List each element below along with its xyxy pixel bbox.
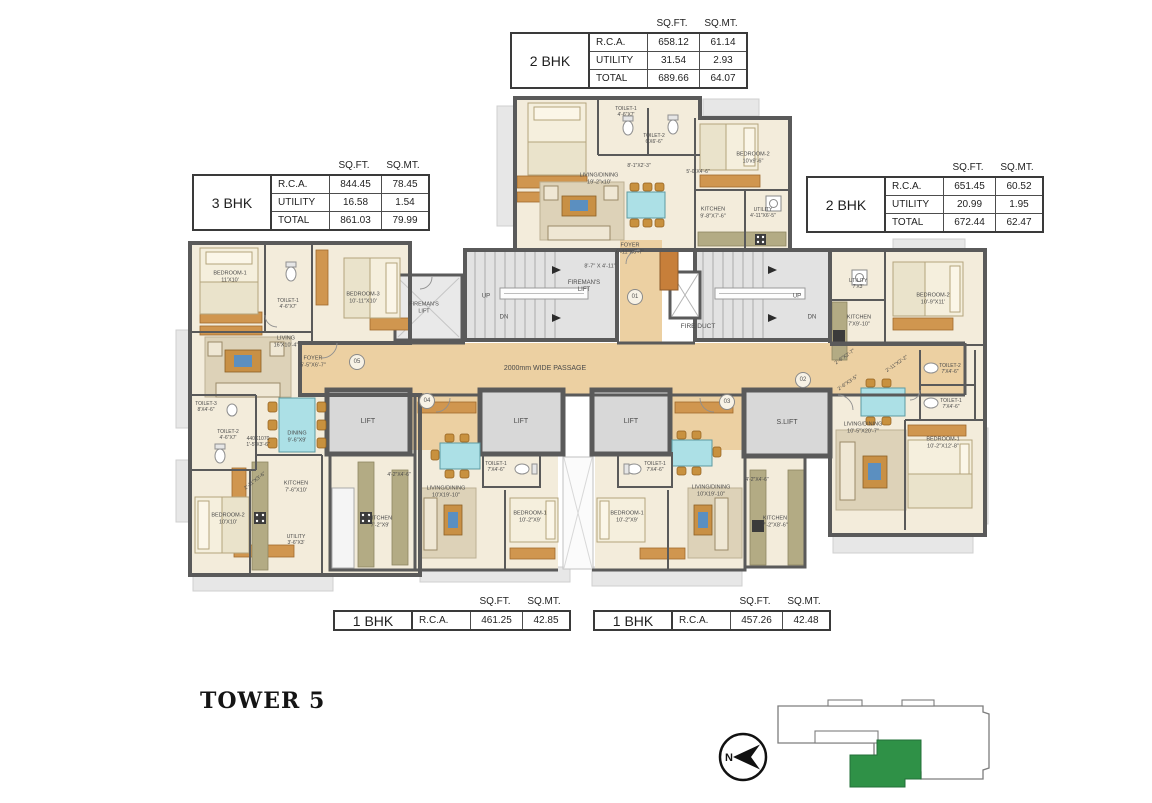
duct-shaft (563, 457, 593, 569)
area-value: 861.03 (330, 212, 382, 229)
col-header: SQ.FT. (469, 596, 521, 607)
col-header: SQ.MT. (994, 162, 1040, 173)
area-value: 20.99 (944, 196, 996, 213)
area-table-row: R.C.A.844.4578.45 (272, 176, 428, 194)
area-table-row: R.C.A.461.2542.85 (413, 612, 569, 629)
area-value: 31.54 (648, 52, 700, 69)
area-value: 79.99 (382, 212, 428, 229)
area-value: 1.54 (382, 194, 428, 211)
area-table-3bhk-left: SQ.FT.SQ.MT.3 BHKR.C.A.844.4578.45UTILIT… (192, 160, 430, 231)
area-value: 651.45 (944, 178, 996, 195)
tower-title: TOWER 5 (200, 688, 325, 714)
area-value: 78.45 (382, 176, 428, 193)
key-plan (770, 695, 1010, 800)
north-arrow: N (716, 730, 776, 790)
area-value: 61.14 (700, 34, 746, 51)
area-value: 16.58 (330, 194, 382, 211)
area-table-2bhk-right: SQ.FT.SQ.MT.2 BHKR.C.A.651.4560.52UTILIT… (806, 162, 1044, 233)
col-header: SQ.MT. (781, 596, 827, 607)
area-value: 689.66 (648, 70, 700, 87)
area-table-1bhk-left: SQ.FT.SQ.MT.1 BHKR.C.A.461.2542.85 (333, 596, 571, 631)
area-value: 844.45 (330, 176, 382, 193)
area-row-name: TOTAL (590, 70, 648, 87)
area-table-row: R.C.A.658.1261.14 (590, 34, 746, 52)
area-row-name: R.C.A. (590, 34, 648, 51)
area-value: 672.44 (944, 214, 996, 231)
bhk-type-label: 1 BHK (595, 612, 673, 629)
area-table-row: R.C.A.457.2642.48 (673, 612, 829, 629)
col-header: SQ.FT. (328, 160, 380, 171)
area-row-name: TOTAL (886, 214, 944, 231)
area-value: 457.26 (731, 612, 783, 629)
area-row-name: R.C.A. (673, 612, 731, 629)
area-table-2bhk-top: SQ.FT.SQ.MT.2 BHKR.C.A.658.1261.14UTILIT… (510, 18, 748, 89)
area-row-name: UTILITY (272, 194, 330, 211)
area-table-row: UTILITY31.542.93 (590, 52, 746, 70)
bhk-type-label: 3 BHK (194, 176, 272, 229)
col-header: SQ.FT. (729, 596, 781, 607)
area-table-1bhk-right: SQ.FT.SQ.MT.1 BHKR.C.A.457.2642.48 (593, 596, 831, 631)
area-value: 60.52 (996, 178, 1042, 195)
area-row-name: UTILITY (886, 196, 944, 213)
key-plan-highlight (850, 740, 921, 787)
floor-plan-drawing (0, 0, 1152, 803)
area-value: 658.12 (648, 34, 700, 51)
col-header: SQ.MT. (521, 596, 567, 607)
bhk-type-label: 1 BHK (335, 612, 413, 629)
lift-shafts (327, 390, 830, 456)
bhk-type-label: 2 BHK (512, 34, 590, 87)
col-header: SQ.MT. (698, 18, 744, 29)
area-row-name: R.C.A. (272, 176, 330, 193)
area-row-name: TOTAL (272, 212, 330, 229)
stair-core-left (465, 250, 617, 340)
area-value: 1.95 (996, 196, 1042, 213)
col-header: SQ.MT. (380, 160, 426, 171)
area-table-row: TOTAL861.0379.99 (272, 212, 428, 229)
area-row-name: R.C.A. (413, 612, 471, 629)
col-header: SQ.FT. (646, 18, 698, 29)
area-row-name: UTILITY (590, 52, 648, 69)
area-table-row: R.C.A.651.4560.52 (886, 178, 1042, 196)
floor-plan-page: 2000mm WIDE PASSAGEFIRE DUCTFIREMAN'S LI… (0, 0, 1152, 803)
col-header: SQ.FT. (942, 162, 994, 173)
area-value: 461.25 (471, 612, 523, 629)
area-table-row: TOTAL672.4462.47 (886, 214, 1042, 231)
area-row-name: R.C.A. (886, 178, 944, 195)
area-value: 62.47 (996, 214, 1042, 231)
area-table-row: TOTAL689.6664.07 (590, 70, 746, 87)
bhk-type-label: 2 BHK (808, 178, 886, 231)
area-value: 2.93 (700, 52, 746, 69)
north-letter: N (725, 752, 733, 764)
area-value: 42.48 (783, 612, 829, 629)
area-table-row: UTILITY20.991.95 (886, 196, 1042, 214)
area-value: 64.07 (700, 70, 746, 87)
area-value: 42.85 (523, 612, 569, 629)
stair-core-right (695, 250, 830, 340)
area-table-row: UTILITY16.581.54 (272, 194, 428, 212)
